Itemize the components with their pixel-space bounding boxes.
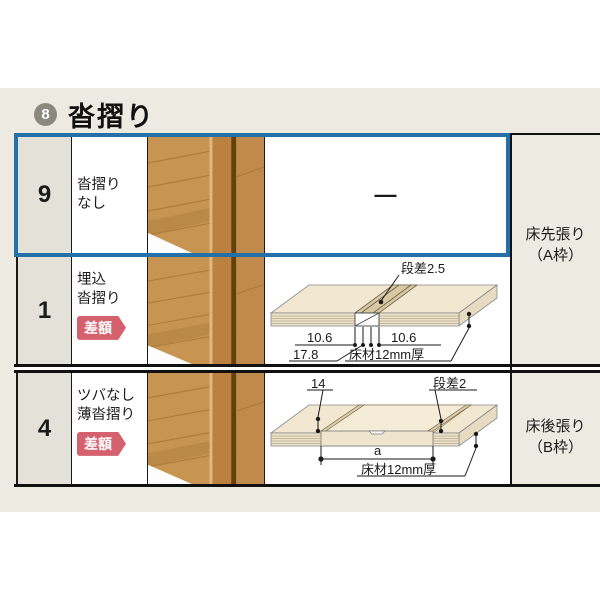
frame-note-b: 床後張り （B枠） [511, 416, 600, 458]
floor-thickness-label: 床材12mm厚 [349, 347, 424, 362]
frame-note-line: 床先張り [511, 224, 600, 245]
frame-note-line: 床後張り [511, 416, 600, 437]
dim-total-label: 17.8 [293, 347, 318, 362]
frame-note-a: 床先張り （A枠） [511, 224, 600, 266]
section-number-badge: 8 [34, 103, 57, 126]
frame-note-line: （B枠） [511, 437, 600, 458]
option-row-1[interactable]: 1 埋込 沓摺り 差額 [16, 257, 510, 364]
cross-section-diagram-thin: 14 段差2 a 床材12mm厚 [265, 373, 510, 484]
option-number: 1 [18, 257, 72, 364]
floor-thickness-label: 床材12mm厚 [361, 462, 436, 477]
dim-step-label: 段差2.5 [401, 261, 445, 276]
section-title: 沓摺り [68, 95, 155, 134]
table-top-border-right [510, 133, 600, 135]
price-difference-badge: 差額 [77, 316, 126, 340]
threshold-photo [148, 257, 265, 364]
option-label: 埋込 沓摺り 差額 [72, 257, 148, 364]
section-header: 8 沓摺り [34, 95, 155, 134]
option-label-line: ツバなし [77, 387, 147, 406]
dim-step-label: 段差2 [433, 376, 466, 391]
table-bottom-border [14, 484, 600, 487]
dim-span-label: a [374, 443, 382, 458]
option-label-line: 沓摺り [77, 290, 147, 309]
threshold-photo [148, 373, 265, 484]
option-row-4[interactable]: 4 ツバなし 薄沓摺り 差額 [16, 373, 510, 484]
cross-section-diagram-embedded: 段差2.5 10.6 10.6 17.8 床材12mm厚 [265, 257, 510, 364]
option-number: 4 [18, 373, 72, 484]
selected-option-highlight [14, 133, 510, 257]
dim-left-label: 10.6 [307, 330, 332, 345]
dim-right-label: 10.6 [391, 330, 416, 345]
dim-edge-label: 14 [311, 376, 325, 391]
frame-separator-line [14, 364, 600, 373]
option-label: ツバなし 薄沓摺り 差額 [72, 373, 148, 484]
option-label-line: 埋込 [77, 271, 147, 290]
frame-note-line: （A枠） [511, 245, 600, 266]
price-difference-badge: 差額 [77, 432, 126, 456]
option-label-line: 薄沓摺り [77, 406, 147, 425]
